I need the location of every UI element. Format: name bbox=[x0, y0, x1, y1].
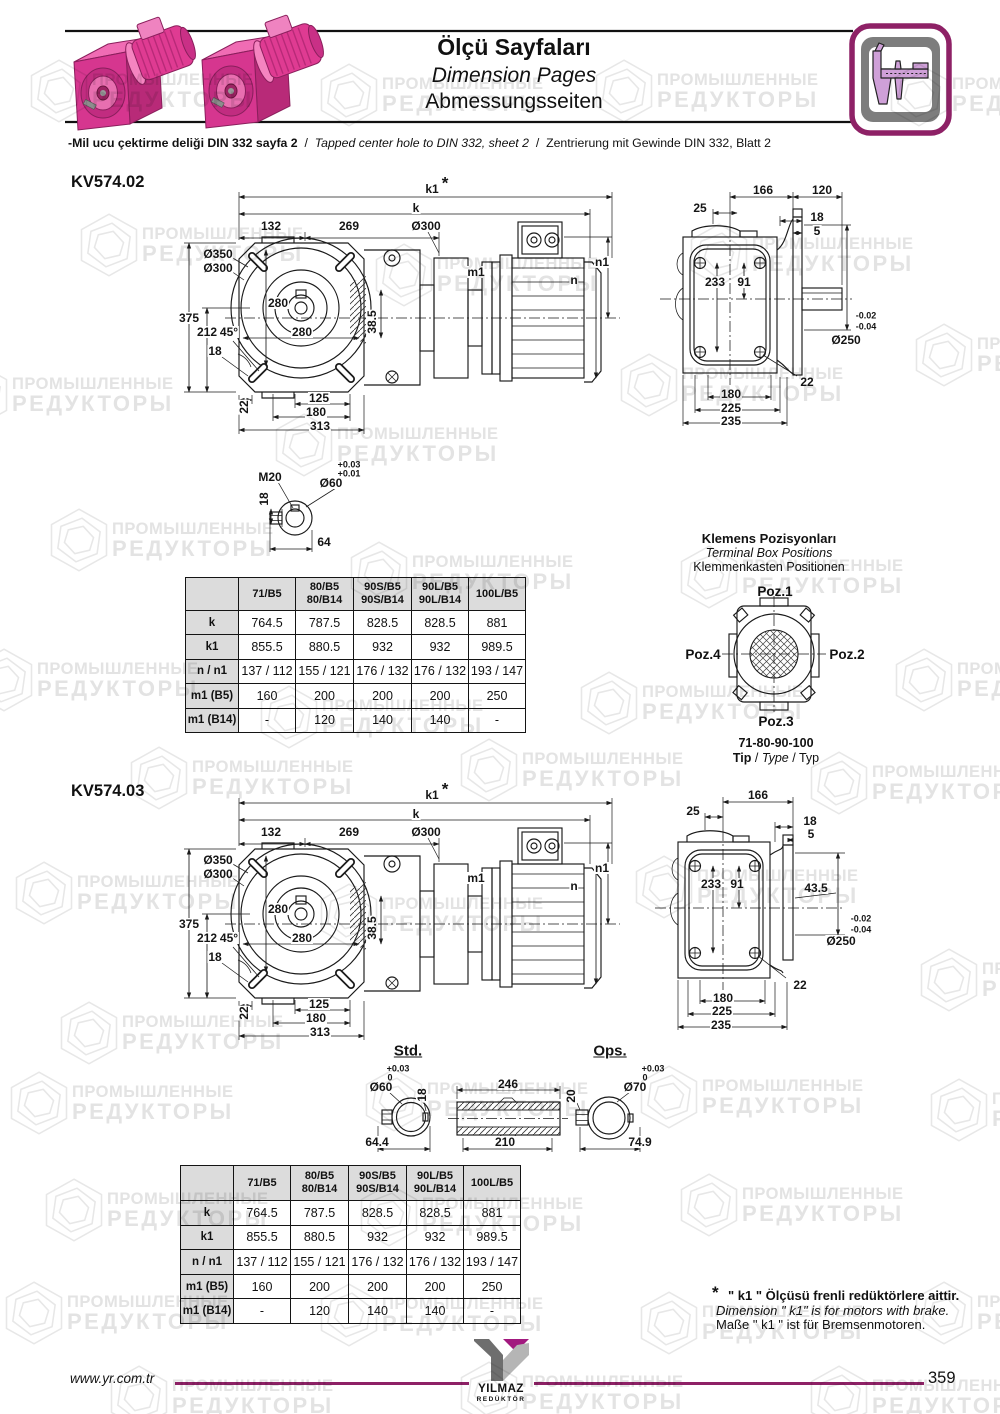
separator: / bbox=[792, 751, 795, 765]
table-cell: - bbox=[464, 1299, 521, 1324]
table-cell: 855.5 bbox=[234, 1225, 291, 1250]
terminal-type-caption: Tip / Type / Typ bbox=[733, 751, 819, 765]
row-label: n / n1 bbox=[181, 1250, 234, 1275]
dimension-table-kv574-02: 71/B580/B580/B1490S/B590S/B1490L/B590L/B… bbox=[185, 577, 526, 733]
table-row: k764.5787.5828.5828.5881 bbox=[181, 1201, 521, 1226]
row-label: m1 (B14) bbox=[186, 708, 239, 732]
table-cell: 137 / 112 bbox=[234, 1250, 291, 1275]
footnote-turkish: " k1 " Ölçüsü frenli redüktörlere aittir… bbox=[728, 1288, 959, 1303]
terminal-title-german: Klemmenkasten Positionen bbox=[693, 560, 844, 574]
column-header: 71/B5 bbox=[234, 1166, 291, 1201]
column-header: 100L/B5 bbox=[469, 578, 526, 611]
page-title: Ölçü Sayfaları Dimension Pages Abmessung… bbox=[364, 34, 664, 114]
table-cell: 176 / 132 bbox=[354, 659, 412, 683]
title-turkish: Ölçü Sayfaları bbox=[364, 34, 664, 61]
table-cell: 828.5 bbox=[354, 611, 412, 635]
table-cell: 764.5 bbox=[239, 611, 296, 635]
table-cell: 880.5 bbox=[296, 635, 354, 659]
footer-rule-left bbox=[175, 1382, 469, 1385]
table-cell: 176 / 132 bbox=[407, 1250, 464, 1275]
table-cell: 932 bbox=[412, 635, 469, 659]
table-cell: 160 bbox=[234, 1274, 291, 1299]
table-cell: 250 bbox=[464, 1274, 521, 1299]
table-cell: 787.5 bbox=[291, 1201, 349, 1226]
table-cell: 120 bbox=[296, 708, 354, 732]
table-corner-cell bbox=[186, 578, 239, 611]
row-label: m1 (B5) bbox=[181, 1274, 234, 1299]
table-cell: 193 / 147 bbox=[469, 659, 526, 683]
table-row: m1 (B14)-120140140- bbox=[181, 1299, 521, 1324]
row-label: k1 bbox=[186, 635, 239, 659]
row-label: k bbox=[186, 611, 239, 635]
tip-turkish: Tip bbox=[733, 751, 752, 765]
table-row: n / n1137 / 112155 / 121176 / 132176 / 1… bbox=[181, 1250, 521, 1275]
section-heading-kv574-02: KV574.02 bbox=[71, 173, 144, 192]
terminal-title-turkish: Klemens Pozisyonları bbox=[702, 531, 836, 546]
table-cell: 989.5 bbox=[464, 1225, 521, 1250]
column-header: 90S/B590S/B14 bbox=[349, 1166, 407, 1201]
section-heading-kv574-03: KV574.03 bbox=[71, 782, 144, 801]
table-cell: 140 bbox=[407, 1299, 464, 1324]
terminal-poz4-label: Poz.4 bbox=[685, 647, 720, 662]
terminal-type-range: 71-80-90-100 bbox=[738, 736, 813, 750]
table-cell: 193 / 147 bbox=[464, 1250, 521, 1275]
website-url: www.yr.com.tr bbox=[70, 1371, 154, 1386]
row-label: n / n1 bbox=[186, 659, 239, 683]
table-row: k1855.5880.5932932989.5 bbox=[186, 635, 526, 659]
table-cell: 989.5 bbox=[469, 635, 526, 659]
table-cell: 137 / 112 bbox=[239, 659, 296, 683]
catalog-page: .ln{stroke:#1a1a1a;fill:none;stroke-widt… bbox=[0, 0, 1000, 1414]
table-cell: 140 bbox=[349, 1299, 407, 1324]
table-cell: 881 bbox=[469, 611, 526, 635]
title-german: Abmessungsseiten bbox=[364, 90, 664, 114]
footer-rule-right bbox=[534, 1382, 924, 1385]
table-cell: 932 bbox=[349, 1225, 407, 1250]
table-corner-cell bbox=[181, 1166, 234, 1201]
table-cell: 881 bbox=[464, 1201, 521, 1226]
row-label: m1 (B5) bbox=[186, 684, 239, 708]
row-label: k1 bbox=[181, 1225, 234, 1250]
table-cell: 200 bbox=[291, 1274, 349, 1299]
table-row: m1 (B5)160200200200250 bbox=[186, 684, 526, 708]
table-cell: 828.5 bbox=[349, 1201, 407, 1226]
table-cell: 140 bbox=[412, 708, 469, 732]
table-cell: 140 bbox=[354, 708, 412, 732]
table-cell: 764.5 bbox=[234, 1201, 291, 1226]
table-row: m1 (B14)-120140140- bbox=[186, 708, 526, 732]
table-cell: 932 bbox=[407, 1225, 464, 1250]
table-cell: 932 bbox=[354, 635, 412, 659]
table-cell: 120 bbox=[291, 1299, 349, 1324]
column-header: 71/B5 bbox=[239, 578, 296, 611]
table-row: n / n1137 / 112155 / 121176 / 132176 / 1… bbox=[186, 659, 526, 683]
separator: / bbox=[755, 751, 758, 765]
column-header: 90S/B590S/B14 bbox=[354, 578, 412, 611]
column-header: 80/B580/B14 bbox=[291, 1166, 349, 1201]
tip-english: Type bbox=[762, 751, 789, 765]
table-cell: 200 bbox=[296, 684, 354, 708]
table-cell: 200 bbox=[407, 1274, 464, 1299]
table-cell: 200 bbox=[354, 684, 412, 708]
terminal-poz2-label: Poz.2 bbox=[829, 647, 864, 662]
table-cell: 176 / 132 bbox=[412, 659, 469, 683]
table-cell: 160 bbox=[239, 684, 296, 708]
row-label: m1 (B14) bbox=[181, 1299, 234, 1324]
table-cell: 155 / 121 bbox=[296, 659, 354, 683]
terminal-title-english: Terminal Box Positions bbox=[706, 546, 833, 560]
table-cell: 155 / 121 bbox=[291, 1250, 349, 1275]
table-row: k764.5787.5828.5828.5881 bbox=[186, 611, 526, 635]
column-header: 80/B580/B14 bbox=[296, 578, 354, 611]
text-layer: Ölçü Sayfaları Dimension Pages Abmessung… bbox=[0, 0, 1000, 1414]
table-cell: 828.5 bbox=[407, 1201, 464, 1226]
logo-subtitle: REDÜKTÖR bbox=[455, 1396, 547, 1403]
table-cell: 176 / 132 bbox=[349, 1250, 407, 1275]
table-cell: 880.5 bbox=[291, 1225, 349, 1250]
table-row: m1 (B5)160200200200250 bbox=[181, 1274, 521, 1299]
column-header: 90L/B590L/B14 bbox=[412, 578, 469, 611]
table-row: k1855.5880.5932932989.5 bbox=[181, 1225, 521, 1250]
din-note-german: Zentrierung mit Gewinde DIN 332, Blatt 2 bbox=[546, 136, 771, 150]
table-cell: - bbox=[469, 708, 526, 732]
table-cell: 200 bbox=[412, 684, 469, 708]
din-note-english: Tapped center hole to DIN 332, sheet 2 bbox=[315, 136, 529, 150]
table-cell: 787.5 bbox=[296, 611, 354, 635]
table-cell: 250 bbox=[469, 684, 526, 708]
column-header: 90L/B590L/B14 bbox=[407, 1166, 464, 1201]
footnote-english: Dimension " k1" is for motors with brake… bbox=[716, 1303, 949, 1318]
row-label: k bbox=[181, 1201, 234, 1226]
title-english: Dimension Pages bbox=[364, 64, 664, 88]
table-cell: 855.5 bbox=[239, 635, 296, 659]
footnote-star: * bbox=[712, 1283, 719, 1303]
din-note-turkish: -Mil ucu çektirme deliği DIN 332 sayfa 2 bbox=[68, 136, 298, 150]
tip-german: Typ bbox=[799, 751, 819, 765]
column-header: 100L/B5 bbox=[464, 1166, 521, 1201]
table-cell: 200 bbox=[349, 1274, 407, 1299]
table-cell: - bbox=[239, 708, 296, 732]
terminal-poz1-label: Poz.1 bbox=[757, 584, 792, 599]
table-cell: - bbox=[234, 1299, 291, 1324]
table-cell: 828.5 bbox=[412, 611, 469, 635]
dimension-table-kv574-03: 71/B580/B580/B1490S/B590S/B1490L/B590L/B… bbox=[180, 1165, 521, 1324]
logo-wordmark: YILMAZ bbox=[455, 1383, 547, 1395]
page-number: 359 bbox=[928, 1369, 956, 1388]
footnote-german: Maße " k1 " ist für Bremsenmotoren. bbox=[716, 1317, 925, 1332]
din-note: -Mil ucu çektirme deliği DIN 332 sayfa 2… bbox=[68, 136, 771, 150]
terminal-poz3-label: Poz.3 bbox=[758, 714, 793, 729]
